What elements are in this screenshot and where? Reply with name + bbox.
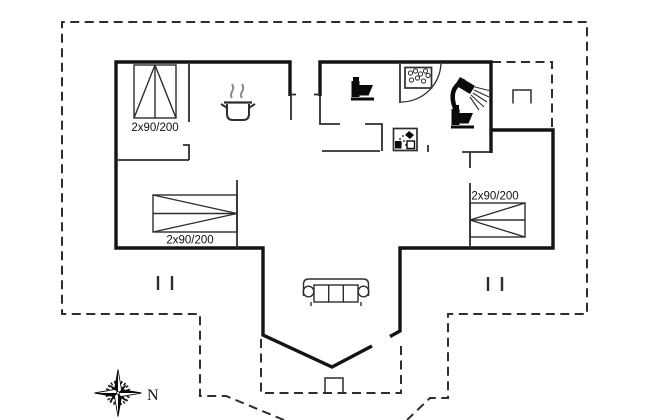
interior-walls: [116, 62, 490, 248]
bed-size-label: 2x90/200: [471, 191, 518, 203]
steam-line: [241, 84, 243, 98]
bed-size-label: 2x90/200: [131, 122, 178, 134]
steam-line: [231, 84, 233, 98]
bed-size-label: 2x90/200: [166, 235, 213, 247]
sofa-icon: [303, 279, 369, 306]
double-bed-icon: [153, 195, 237, 232]
floor-plan: 2x90/200 2x90/200 2x90/200: [0, 0, 650, 420]
compass-rose-icon: [95, 370, 142, 417]
shower-cabin-icon: [394, 129, 418, 151]
compass-north-label: N: [147, 387, 159, 404]
toilet-icon: [351, 77, 374, 101]
terrace-post-marker: [158, 276, 172, 290]
nook-dashed-outline: [492, 62, 552, 130]
terrace-dashed-outline: [62, 22, 587, 420]
washbasin-bubbles-icon: [405, 68, 432, 89]
pot-with-steam-icon: [221, 84, 255, 120]
floor-plan-canvas: 2x90/200 2x90/200 2x90/200: [0, 0, 650, 420]
terrace-niche-marker: [513, 90, 531, 104]
terrace-post-marker: [488, 277, 502, 291]
double-bed-icon: [470, 203, 525, 237]
entrance-step-marker: [325, 378, 343, 393]
toilet-icon: [451, 105, 474, 129]
double-bed-icon: [134, 65, 176, 118]
